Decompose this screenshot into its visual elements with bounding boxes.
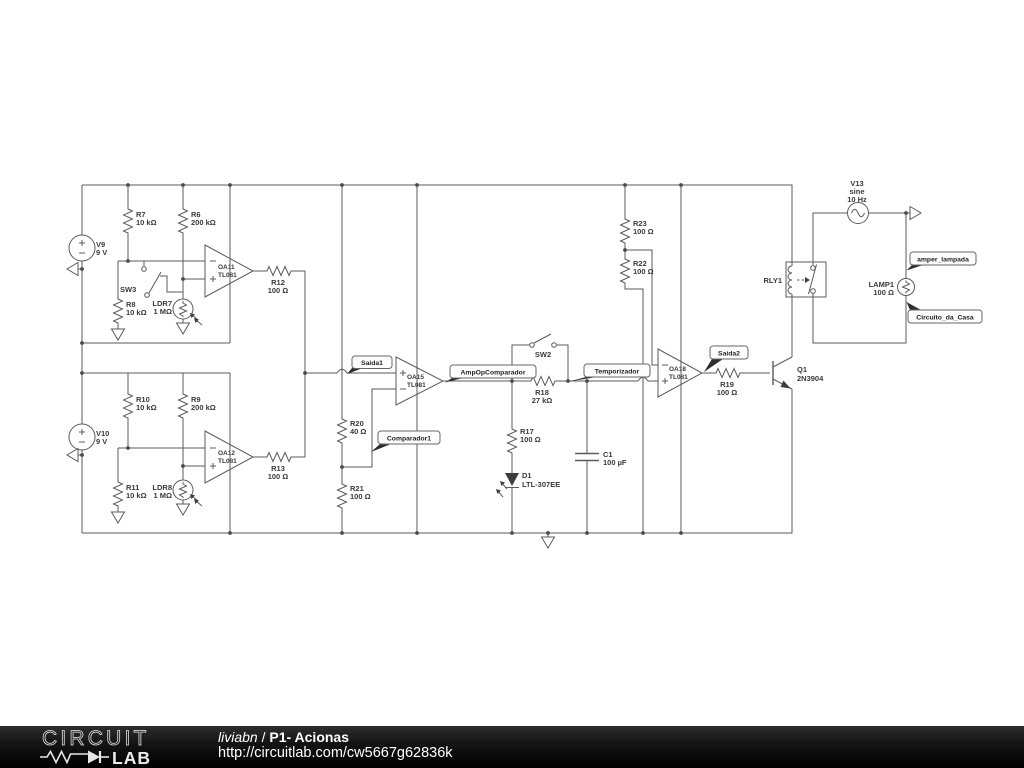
resistor-R20: R20 40 Ω	[338, 415, 367, 445]
resistor-R11: R11 10 kΩ	[112, 478, 147, 523]
switch-SW2: SW2	[530, 334, 557, 359]
footer-circuit-title: P1- Acionas	[269, 729, 349, 745]
label-lamp1-value: 100 Ω	[873, 288, 894, 297]
schematic-canvas: V9 9 V V10 9 V R7 10 kΩ R6 200 kΩ R8 10 …	[0, 0, 1024, 726]
label-oa18-value: TL081	[669, 374, 688, 381]
label-d1-name: D1	[522, 471, 532, 480]
label-ldr7-value: 1 MΩ	[153, 307, 172, 316]
opamp-OA12: OA12 TL081	[205, 431, 253, 483]
label-r18-value: 27 kΩ	[532, 396, 553, 405]
ground-icon	[67, 449, 82, 462]
photoresistor-LDR7: LDR7 1 MΩ	[152, 299, 202, 334]
label-oa11-value: TL081	[218, 272, 237, 279]
resistor-R13: R13 100 Ω	[263, 453, 293, 482]
photoresistor-LDR8: LDR8 1 MΩ	[152, 480, 202, 515]
supply-buses	[230, 185, 681, 533]
switch-SW3: SW3	[120, 267, 162, 298]
label-q1-name: Q1	[797, 365, 807, 374]
label-rly1-name: RLY1	[764, 276, 782, 285]
flag-circuito-da-casa-label: Circuito_da_Casa	[916, 315, 974, 322]
flag-amper-lampada-label: amper_lampada	[917, 257, 969, 264]
logo-diode-triangle	[88, 751, 100, 764]
label-oa12-name: OA12	[218, 450, 235, 457]
label-r8-value: 10 kΩ	[126, 308, 147, 317]
ground-icon	[177, 500, 190, 515]
label-v10-value: 9 V	[96, 437, 107, 446]
label-r23-value: 100 Ω	[633, 227, 654, 236]
label-r6-value: 200 kΩ	[191, 218, 216, 227]
resistor-R23: R23 100 Ω	[621, 215, 654, 245]
flag-temporizador-label: Temporizador	[595, 369, 640, 376]
voltage-source-V10: V10 9 V	[67, 424, 109, 462]
label-v13-freq: 10 Hz	[847, 195, 867, 204]
resistor-R21: R21 100 Ω	[338, 480, 371, 510]
flag-comparador1-label: Comparador1	[387, 436, 431, 443]
label-c1-value: 100 µF	[603, 458, 627, 467]
label-oa11-name: OA11	[218, 264, 235, 271]
label-r22-value: 100 Ω	[633, 267, 654, 276]
resistor-R10: R10 10 kΩ	[124, 390, 157, 420]
ground-right-icon	[906, 207, 921, 220]
resistor-R6: R6 200 kΩ	[179, 205, 216, 235]
label-oa15-name: OA15	[407, 374, 424, 381]
footer-url: http://circuitlab.com/cw5667g62836k	[218, 745, 453, 761]
label-r10-value: 10 kΩ	[136, 403, 157, 412]
label-q1-value: 2N3904	[797, 374, 824, 383]
resistor-R8: R8 10 kΩ	[112, 295, 147, 340]
opamp-OA15: OA15 TL081	[396, 357, 443, 405]
relay-RLY1: RLY1	[764, 262, 826, 297]
resistor-R9: R9 200 kΩ	[179, 390, 216, 420]
flag-saida1: Saida1	[347, 356, 392, 374]
ground-icon	[542, 533, 555, 548]
voltage-source-V13: V13 sine 10 Hz	[847, 179, 868, 224]
flag-saida2-label: Saida2	[718, 351, 740, 358]
label-r11-value: 10 kΩ	[126, 491, 147, 500]
lamp-LAMP1: LAMP1 100 Ω	[869, 279, 915, 298]
circuitlab-export-page: V9 9 V V10 9 V R7 10 kΩ R6 200 kΩ R8 10 …	[0, 0, 1024, 768]
resistor-R19: R19 100 Ω	[712, 369, 742, 398]
label-r12-value: 100 Ω	[268, 286, 289, 295]
label-r19-value: 100 Ω	[717, 388, 738, 397]
resistor-R12: R12 100 Ω	[263, 267, 293, 296]
ground-icon	[112, 325, 125, 340]
resistor-R17: R17 100 Ω	[508, 425, 541, 455]
resistor-R7: R7 10 kΩ	[124, 205, 157, 235]
circuitlab-footer-bar: CIRCUIT LAB liviabn / P1- Acionas http:/…	[0, 726, 1024, 768]
label-r13-value: 100 Ω	[268, 472, 289, 481]
voltage-source-V9: V9 9 V	[67, 235, 107, 276]
flag-ampopcomparador: AmpOpComparador	[445, 365, 536, 383]
flag-ampopcomparador-label: AmpOpComparador	[461, 370, 526, 377]
flag-comparador1: Comparador1	[371, 431, 440, 452]
capacitor-C1: C1 100 µF	[575, 450, 627, 467]
label-r9-value: 200 kΩ	[191, 403, 216, 412]
label-sw2-name: SW2	[535, 350, 551, 359]
ground-icon	[177, 319, 190, 334]
ground-icon	[67, 263, 82, 276]
logo-circuit-text: CIRCUIT	[42, 727, 150, 750]
footer-meta: liviabn / P1- Acionas http://circuitlab.…	[218, 729, 453, 761]
footer-divider: /	[262, 729, 266, 745]
transistor-Q1: Q1 2N3904	[773, 357, 824, 389]
label-r7-value: 10 kΩ	[136, 218, 157, 227]
label-oa18-name: OA18	[669, 366, 686, 373]
flag-saida1-label: Saida1	[361, 360, 383, 367]
label-oa12-value: TL081	[218, 458, 237, 465]
footer-attribution: liviabn / P1- Acionas	[218, 729, 453, 745]
resistor-R22: R22 100 Ω	[621, 255, 654, 285]
opamp-OA18: OA18 TL081	[658, 349, 702, 397]
label-r17-value: 100 Ω	[520, 435, 541, 444]
label-ldr8-value: 1 MΩ	[153, 491, 172, 500]
label-v9-value: 9 V	[96, 248, 107, 257]
ground-icon	[112, 508, 125, 523]
label-r21-value: 100 Ω	[350, 492, 371, 501]
label-sw3-name: SW3	[120, 285, 136, 294]
label-d1-value: LTL-307EE	[522, 480, 560, 489]
flag-temporizador: Temporizador	[569, 364, 650, 382]
led-D1: D1 LTL-307EE	[496, 471, 560, 497]
circuitlab-logo: CIRCUIT LAB	[36, 726, 216, 768]
label-r20-value: 40 Ω	[350, 427, 366, 436]
flag-amper-lampada: amper_lampada	[907, 252, 977, 271]
opamp-OA11: OA11 TL081	[205, 245, 253, 297]
resistor-R18: R18 27 kΩ	[527, 377, 557, 406]
footer-author: liviabn	[218, 729, 258, 745]
junction-dots	[80, 183, 908, 535]
flag-circuito-da-casa: Circuito_da_Casa	[907, 302, 983, 323]
logo-lab-text: LAB	[112, 748, 151, 768]
